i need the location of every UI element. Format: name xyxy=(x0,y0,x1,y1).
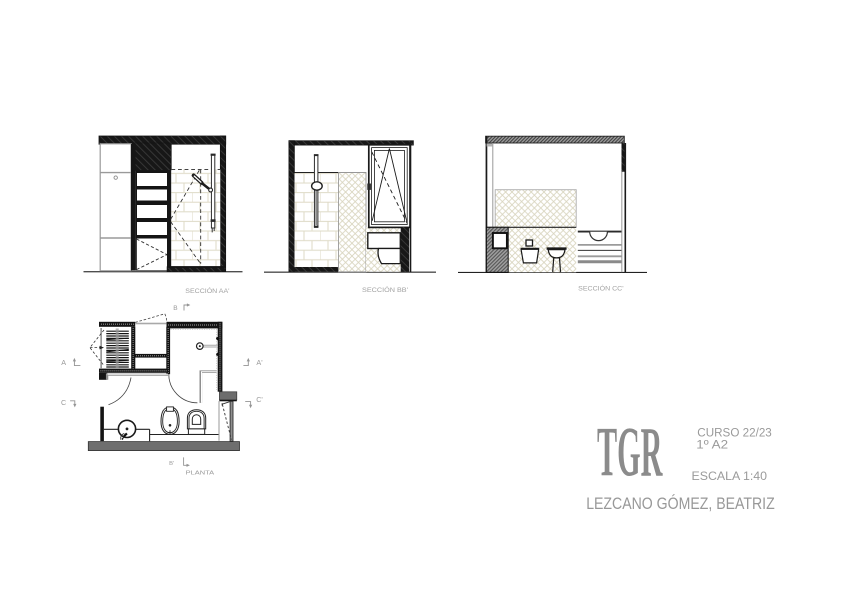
svg-text:SECCIÓN BB': SECCIÓN BB' xyxy=(362,287,408,294)
svg-text:A: A xyxy=(61,358,66,367)
svg-text:1º A2: 1º A2 xyxy=(696,437,728,451)
svg-text:A': A' xyxy=(256,358,263,367)
svg-text:C: C xyxy=(61,398,66,407)
svg-text:ESCALA 1:40: ESCALA 1:40 xyxy=(692,469,768,483)
svg-text:SECCIÓN AA': SECCIÓN AA' xyxy=(185,288,229,295)
svg-text:LEZCANO GÓMEZ, BEATRIZ: LEZCANO GÓMEZ, BEATRIZ xyxy=(586,494,775,513)
svg-text:TGR: TGR xyxy=(597,412,663,491)
svg-text:PLANTA: PLANTA xyxy=(186,471,215,477)
svg-text:B: B xyxy=(173,305,178,312)
svg-text:B': B' xyxy=(169,461,174,467)
svg-text:C': C' xyxy=(256,395,263,404)
svg-text:SECCIÓN CC': SECCIÓN CC' xyxy=(578,286,623,293)
